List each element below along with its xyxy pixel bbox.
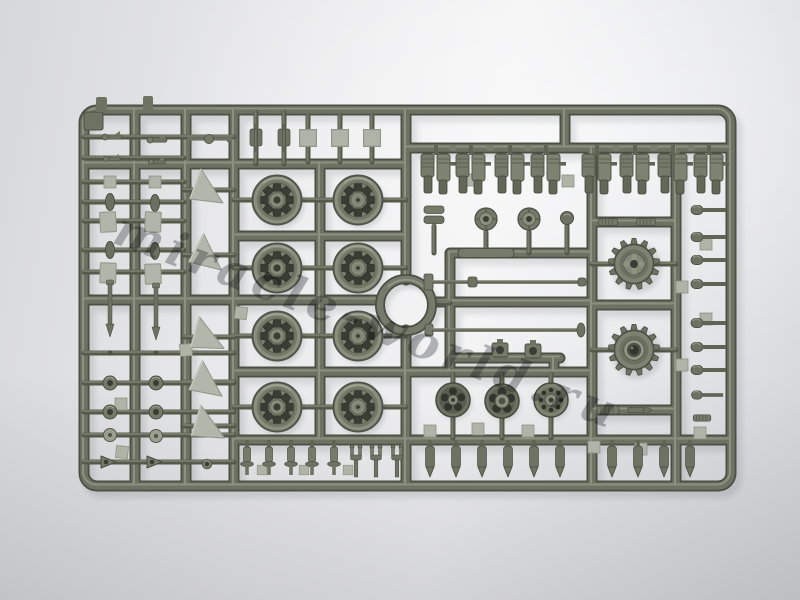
road-wheel xyxy=(253,244,305,297)
round-head-peg xyxy=(692,391,724,399)
wheel-hub xyxy=(436,383,472,420)
road-wheel xyxy=(253,383,305,436)
round-head-peg xyxy=(691,343,726,352)
round-head-peg xyxy=(691,280,726,289)
road-wheel xyxy=(334,312,386,365)
road-wheel xyxy=(334,383,386,436)
round-head-peg xyxy=(691,256,726,265)
road-wheel xyxy=(253,176,305,229)
drive-sprocket xyxy=(608,238,662,293)
ball-part xyxy=(561,212,574,225)
top-strip-parts xyxy=(250,124,380,152)
wheel-hub xyxy=(485,384,521,421)
wheel-hub xyxy=(534,383,570,420)
hub-cap xyxy=(518,208,540,230)
round-head-peg xyxy=(691,366,726,375)
road-wheel xyxy=(334,244,386,297)
molded-bar xyxy=(458,249,514,258)
hub-cap xyxy=(475,208,497,230)
bottom-hub-wheels xyxy=(436,383,570,421)
sprue-photo xyxy=(0,0,800,600)
sprue-stub xyxy=(143,96,153,111)
bracket-part xyxy=(525,340,541,358)
bracket-part xyxy=(492,339,508,357)
corner-gusset xyxy=(84,112,103,130)
drive-sprocket xyxy=(608,324,662,379)
round-head-peg xyxy=(691,206,726,215)
road-wheel xyxy=(253,312,305,365)
sprue-stub xyxy=(96,97,107,112)
road-wheel xyxy=(334,176,386,229)
photo-background: miracle-world.ru xyxy=(0,0,800,600)
